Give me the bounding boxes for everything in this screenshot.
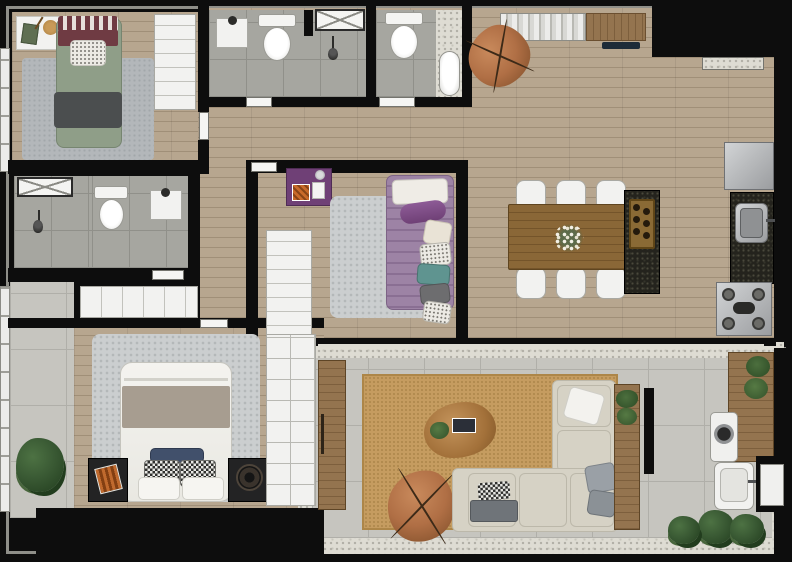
bedroom2-desk-box — [292, 184, 310, 201]
bedroom2-door — [251, 162, 277, 172]
stove-burner-2 — [752, 288, 765, 301]
bathroom1-toilet-tank — [258, 14, 296, 27]
bathtub — [439, 51, 460, 96]
wall-bed1-bottom — [8, 160, 209, 174]
sideboard-cabinet — [586, 13, 646, 41]
bedroom1-pillow — [70, 40, 106, 66]
wall-bed2-right — [456, 160, 468, 342]
terrace-right-wall — [774, 348, 792, 554]
service-divider-wall — [644, 388, 654, 474]
bathroom1-toilet-bowl — [263, 27, 291, 61]
refrigerator — [724, 142, 774, 190]
kitchen-sink-basin — [740, 208, 763, 238]
utility-door — [760, 464, 784, 506]
sideboard-tray — [602, 42, 640, 49]
garden-plant-2 — [730, 514, 764, 544]
wall-bed2-top — [246, 160, 466, 173]
bathroom3-shower-head — [33, 220, 43, 233]
washer-door — [714, 424, 734, 444]
bathroom1-shower-divider — [304, 10, 313, 36]
service-plant-2 — [744, 378, 768, 399]
dining-chair-6 — [596, 266, 626, 299]
stove-burner-1 — [722, 288, 735, 301]
bathroom2-toilet-bowl — [390, 25, 418, 59]
floor-plan — [0, 0, 792, 562]
entry-door-threshold — [702, 57, 764, 70]
dining-chair-4 — [516, 266, 546, 299]
bathroom1-vent-window — [315, 9, 365, 31]
bathroom3-vent-window — [17, 177, 73, 197]
right-wall — [774, 57, 792, 347]
master-pillow-white-2 — [182, 477, 224, 500]
bathroom3-toilet-tank — [94, 186, 128, 199]
flower-centerpiece — [554, 224, 584, 252]
kitchen-faucet — [766, 219, 775, 222]
master-pillow-white-1 — [138, 477, 180, 500]
bathroom3-faucet — [161, 188, 170, 197]
stove-center-grate — [733, 302, 755, 314]
bedroom2-wardrobe — [266, 230, 312, 340]
stove-burner-3 — [722, 317, 735, 330]
sofa-gray-bench — [470, 500, 518, 522]
master-wardrobe — [266, 334, 316, 506]
bath1-door — [246, 97, 272, 107]
sliding-door-track — [318, 344, 764, 347]
master-bed-fold — [124, 378, 228, 381]
bedroom1-window — [0, 48, 10, 172]
bedroom2-desk-pad — [312, 182, 325, 199]
hall-low-cabinet — [80, 286, 198, 318]
garden-plant-1 — [698, 510, 734, 544]
garden-plant-3 — [668, 516, 700, 544]
shower-head — [328, 48, 338, 60]
dining-chair-5 — [556, 266, 586, 299]
wall-bed2-left — [246, 160, 258, 342]
balcony-plant — [16, 438, 64, 492]
sofa-bottom-cushion-2 — [519, 473, 567, 527]
master-taupe-runner — [122, 386, 230, 428]
service-plant-1 — [746, 356, 770, 377]
bedroom2-desk-cup — [315, 170, 325, 180]
bathroom2-toilet-tank — [385, 12, 423, 25]
wall-master-bottom — [36, 508, 324, 554]
bedroom1-wardrobe — [154, 14, 196, 110]
console-plant-2 — [617, 408, 637, 425]
bedroom1-door — [199, 112, 209, 140]
island-burners — [633, 204, 640, 211]
wall-baths-bottom — [198, 96, 472, 107]
bathroom1-faucet — [228, 16, 237, 25]
bath2-door — [379, 97, 415, 107]
bath3-door — [152, 270, 184, 280]
building-hall-void — [652, 0, 792, 57]
stove-burner-4 — [752, 317, 765, 330]
sofa-pillow-houndstooth — [477, 481, 510, 501]
terrace-cabinet-handle — [321, 414, 324, 454]
master-door — [200, 319, 228, 328]
bedroom2-pillow-patterned-2 — [422, 300, 453, 325]
bathroom3-toilet-bowl — [99, 199, 124, 230]
laundry-tub-basin — [720, 468, 748, 502]
coffee-table-books — [452, 418, 476, 433]
wall-bath1-bath2 — [366, 0, 376, 106]
wheel-clock — [236, 464, 263, 491]
bedroom1-dark-throw — [54, 92, 122, 128]
